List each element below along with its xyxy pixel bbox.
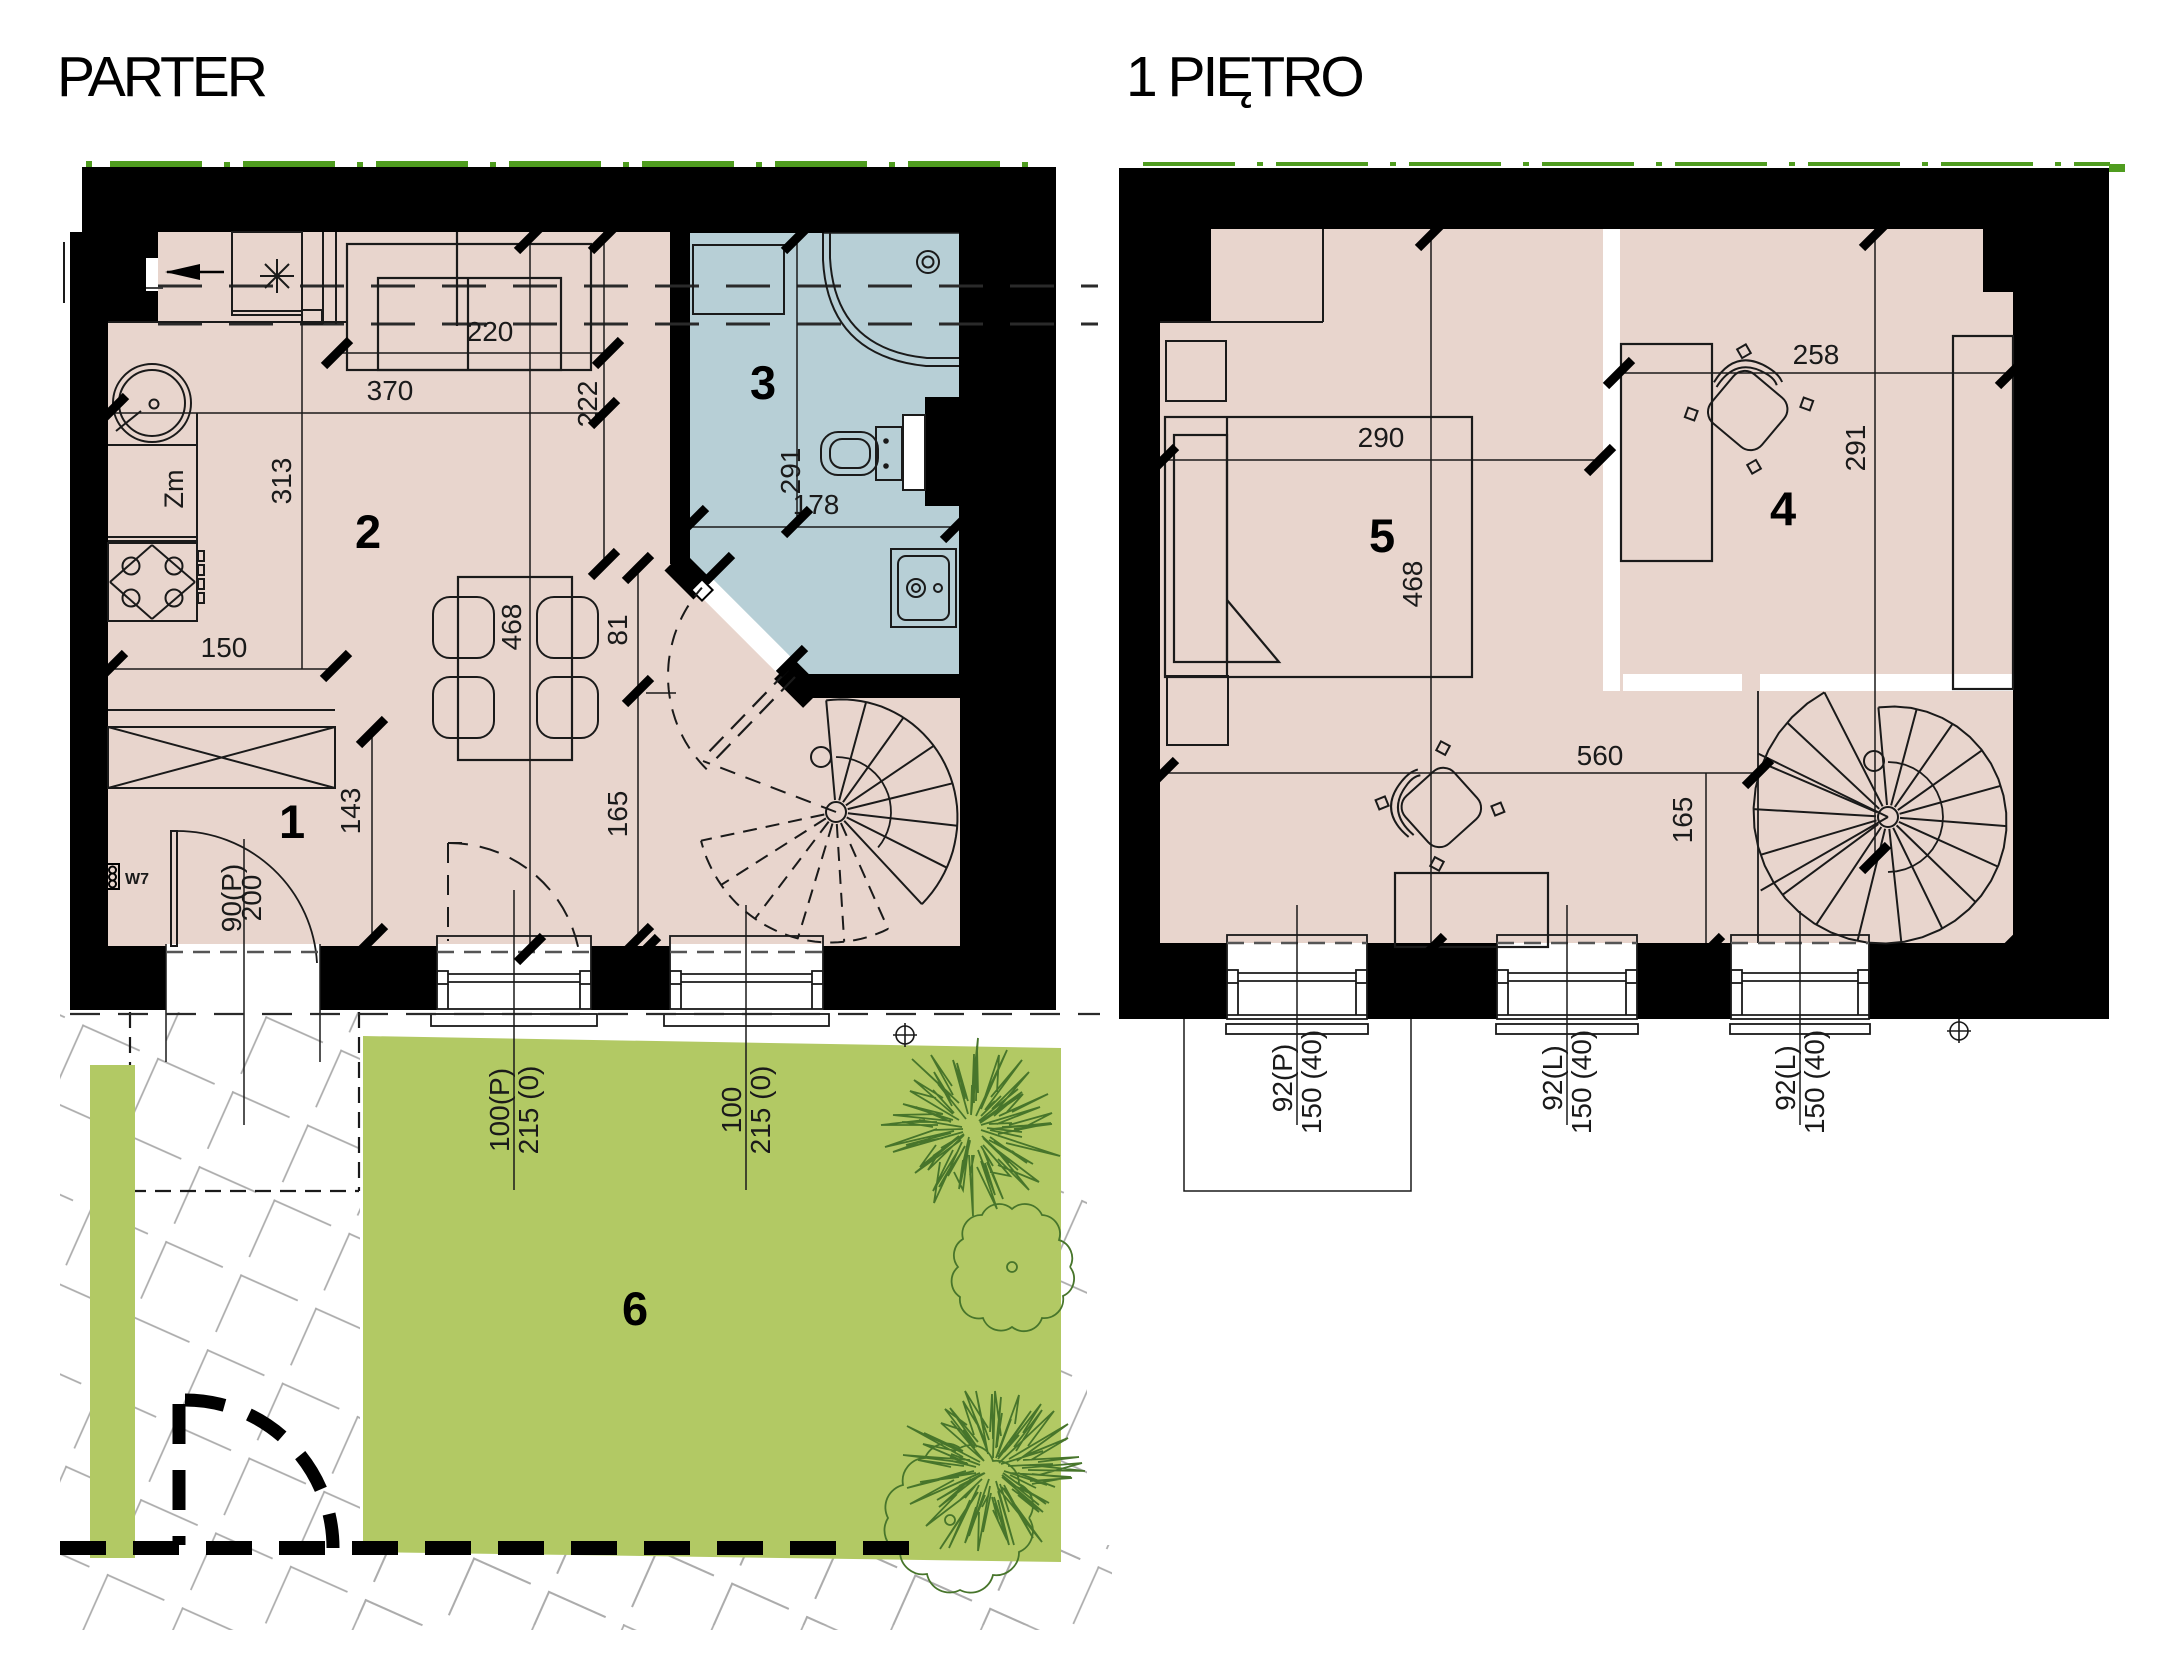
svg-text:370: 370 — [367, 375, 414, 406]
svg-text:150 (40): 150 (40) — [1296, 1030, 1327, 1134]
svg-text:165: 165 — [1667, 797, 1698, 844]
svg-text:5: 5 — [1369, 509, 1395, 562]
svg-text:PARTER: PARTER — [57, 45, 266, 109]
svg-text:92(L): 92(L) — [1770, 1045, 1801, 1110]
svg-text:1 PIĘTRO: 1 PIĘTRO — [1126, 45, 1362, 109]
svg-text:215 (0): 215 (0) — [513, 1066, 544, 1155]
svg-text:468: 468 — [496, 604, 527, 651]
svg-text:560: 560 — [1577, 740, 1624, 771]
svg-text:100: 100 — [716, 1087, 747, 1134]
svg-text:92(P): 92(P) — [1267, 1044, 1298, 1112]
svg-text:100(P): 100(P) — [484, 1068, 515, 1152]
svg-text:165: 165 — [602, 791, 633, 838]
svg-text:258: 258 — [1793, 339, 1840, 370]
svg-text:150 (40): 150 (40) — [1566, 1030, 1597, 1134]
svg-text:4: 4 — [1770, 482, 1796, 535]
svg-text:291: 291 — [775, 448, 806, 495]
svg-text:W7: W7 — [125, 871, 149, 888]
svg-text:215 (0): 215 (0) — [745, 1066, 776, 1155]
svg-text:291: 291 — [1840, 425, 1871, 472]
svg-text:3: 3 — [750, 356, 776, 409]
svg-text:468: 468 — [1397, 561, 1428, 608]
svg-text:Zm: Zm — [159, 470, 189, 509]
svg-text:2: 2 — [355, 505, 381, 558]
svg-text:92(L): 92(L) — [1537, 1045, 1568, 1110]
svg-text:150 (40): 150 (40) — [1799, 1030, 1830, 1134]
svg-text:81: 81 — [602, 614, 633, 645]
svg-text:313: 313 — [266, 458, 297, 505]
svg-text:220: 220 — [467, 316, 514, 347]
svg-text:143: 143 — [335, 788, 366, 835]
svg-text:6: 6 — [622, 1282, 648, 1335]
svg-text:150: 150 — [201, 632, 248, 663]
svg-text:1: 1 — [279, 795, 305, 848]
svg-text:290: 290 — [1358, 422, 1405, 453]
svg-text:200: 200 — [236, 875, 267, 922]
